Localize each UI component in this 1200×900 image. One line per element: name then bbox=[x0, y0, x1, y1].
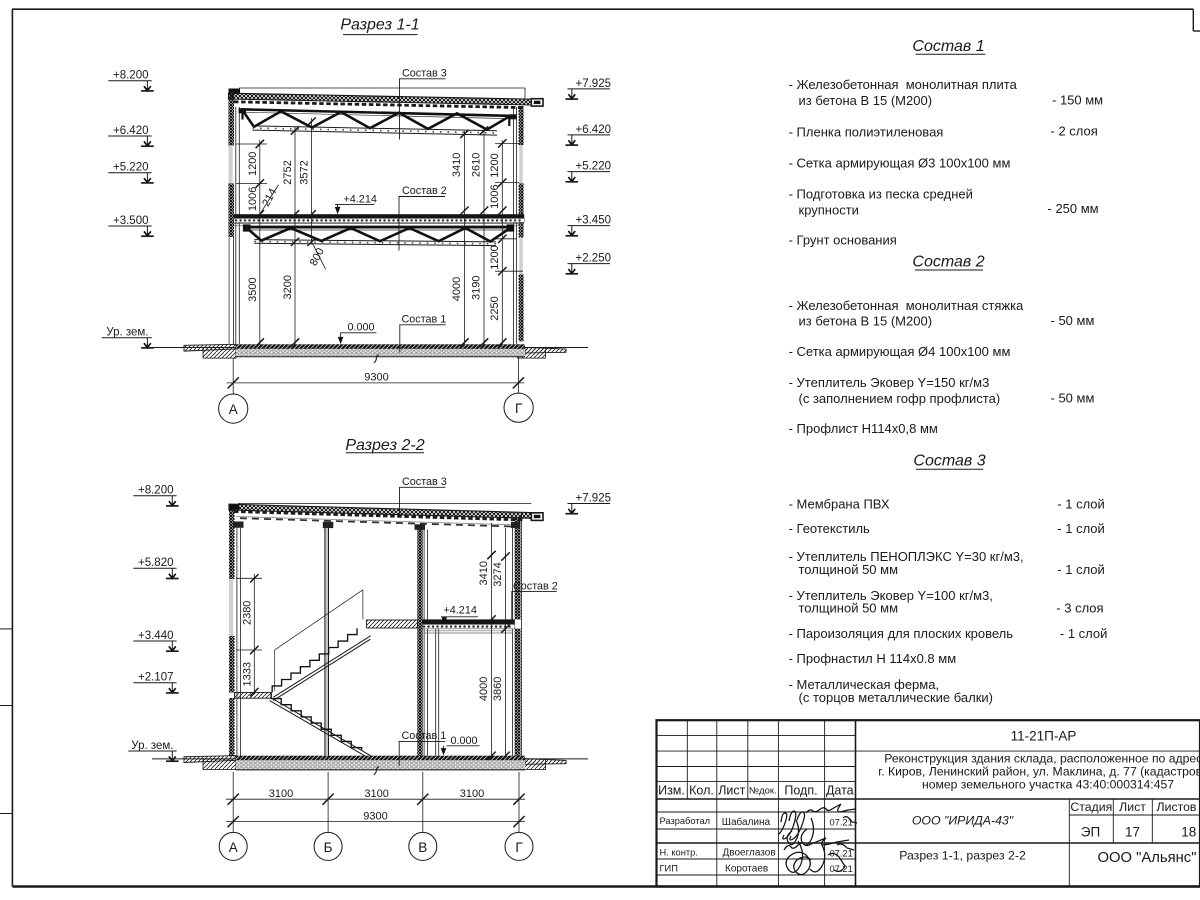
svg-text:17: 17 bbox=[1125, 825, 1140, 840]
svg-text:2250: 2250 bbox=[489, 296, 501, 320]
svg-text:3190: 3190 bbox=[470, 275, 482, 299]
svg-text:Состав 2: Состав 2 bbox=[513, 581, 558, 593]
svg-text:Состав 1: Состав 1 bbox=[402, 730, 447, 742]
svg-text:+8.200: +8.200 bbox=[138, 485, 174, 497]
svg-text:- 50 мм: - 50 мм bbox=[1051, 313, 1095, 328]
svg-text:- Грунт основания: - Грунт основания bbox=[789, 233, 897, 248]
svg-text:А: А bbox=[229, 402, 238, 417]
svg-text:+2.250: +2.250 bbox=[576, 253, 612, 265]
svg-text:Состав 3: Состав 3 bbox=[402, 476, 447, 488]
svg-text:1200: 1200 bbox=[489, 153, 501, 177]
svg-text:18: 18 bbox=[1181, 825, 1196, 840]
svg-text:3100: 3100 bbox=[269, 788, 293, 800]
svg-text:+3.440: +3.440 bbox=[138, 630, 174, 642]
svg-text:- 1 слой: - 1 слой bbox=[1057, 497, 1105, 512]
svg-text:Разрез 1-1, разрез 2-2: Разрез 1-1, разрез 2-2 bbox=[899, 849, 1026, 863]
svg-text:- Пленка полиэтиленовая: - Пленка полиэтиленовая bbox=[789, 125, 944, 140]
svg-text:Состав 3: Состав 3 bbox=[913, 453, 985, 470]
svg-text:3500: 3500 bbox=[247, 277, 259, 301]
svg-text:+8.200: +8.200 bbox=[113, 70, 149, 82]
svg-text:крупности: крупности bbox=[799, 203, 859, 218]
svg-text:Состав 1: Состав 1 bbox=[402, 313, 447, 325]
svg-text:ООО "Альянс": ООО "Альянс" bbox=[1098, 850, 1197, 866]
svg-text:Шабалина: Шабалина bbox=[722, 816, 771, 828]
svg-text:+3.500: +3.500 bbox=[113, 215, 149, 227]
svg-text:- Мембрана ПВХ: - Мембрана ПВХ bbox=[789, 497, 890, 512]
svg-text:+4.214: +4.214 bbox=[344, 193, 377, 205]
svg-text:9300: 9300 bbox=[364, 372, 388, 384]
svg-text:1200: 1200 bbox=[247, 152, 259, 176]
svg-text:Состав 1: Состав 1 bbox=[912, 38, 984, 55]
svg-text:- 1 слой: - 1 слой bbox=[1057, 562, 1105, 577]
svg-text:ООО "ИРИДА-43": ООО "ИРИДА-43" bbox=[912, 813, 1014, 827]
svg-text:Дата: Дата bbox=[826, 784, 854, 798]
svg-text:2610: 2610 bbox=[470, 153, 482, 177]
svg-text:1006: 1006 bbox=[247, 187, 259, 211]
svg-text:- Профлист Н114х0,8 мм: - Профлист Н114х0,8 мм bbox=[789, 421, 938, 436]
svg-text:Разрез 1-1: Разрез 1-1 bbox=[340, 17, 419, 34]
svg-text:Лист: Лист bbox=[1119, 800, 1146, 814]
svg-text:1006: 1006 bbox=[489, 184, 501, 208]
svg-text:+4.214: +4.214 bbox=[444, 604, 477, 616]
svg-text:из бетона В 15 (М200): из бетона В 15 (М200) bbox=[799, 314, 933, 329]
svg-text:- 50 мм: - 50 мм bbox=[1051, 391, 1095, 406]
svg-text:ГИП: ГИП bbox=[660, 864, 678, 874]
svg-text:- Профнастил Н 114х0.8 мм: - Профнастил Н 114х0.8 мм bbox=[789, 651, 957, 666]
svg-text:+7.925: +7.925 bbox=[576, 492, 612, 504]
svg-text:Подп.: Подп. bbox=[784, 784, 817, 798]
svg-text:В: В bbox=[418, 840, 427, 855]
svg-text:Лист: Лист bbox=[718, 784, 745, 798]
svg-text:Стадия: Стадия bbox=[1070, 800, 1112, 814]
svg-text:номер земельного участка 43:40: номер земельного участка 43:40:000314:45… bbox=[922, 777, 1174, 791]
svg-text:Двоеглазов: Двоеглазов bbox=[723, 848, 776, 859]
svg-text:- 1 слой: - 1 слой bbox=[1060, 626, 1108, 641]
svg-text:Ур. зем.: Ур. зем. bbox=[131, 740, 173, 752]
svg-text:- 250 мм: - 250 мм bbox=[1048, 201, 1099, 216]
svg-text:(с заполнением гофр профлиста): (с заполнением гофр профлиста) bbox=[799, 391, 1001, 406]
svg-text:2380: 2380 bbox=[241, 601, 253, 625]
svg-text:Г: Г bbox=[515, 401, 523, 416]
svg-text:+6.420: +6.420 bbox=[576, 124, 612, 136]
svg-text:Н. контр.: Н. контр. bbox=[660, 848, 698, 858]
svg-text:1333: 1333 bbox=[241, 662, 253, 686]
svg-text:0.000: 0.000 bbox=[451, 735, 478, 747]
svg-text:- Железобетонная монолитная с: - Железобетонная монолитная стяжка bbox=[789, 298, 1024, 313]
svg-text:3410: 3410 bbox=[478, 561, 490, 585]
svg-text:+3.450: +3.450 bbox=[576, 215, 612, 227]
svg-text:+5.220: +5.220 bbox=[113, 162, 149, 174]
svg-text:- 2 слоя: - 2 слоя bbox=[1051, 124, 1098, 139]
svg-text:Реконструкция здания склада, р: Реконструкция здания склада, расположенн… bbox=[884, 751, 1200, 765]
svg-text:Ур. зем.: Ур. зем. bbox=[106, 327, 148, 339]
svg-text:- Утеплитель Эковер Y=150 кг/м: - Утеплитель Эковер Y=150 кг/м3 bbox=[789, 375, 990, 390]
svg-text:ЭП: ЭП bbox=[1081, 825, 1100, 840]
svg-text:3274: 3274 bbox=[492, 562, 504, 586]
svg-text:Листов: Листов bbox=[1157, 800, 1197, 814]
svg-text:11-21П-АР: 11-21П-АР bbox=[1011, 728, 1077, 743]
svg-text:Кол.: Кол. bbox=[689, 784, 714, 798]
svg-text:толщиной 50 мм: толщиной 50 мм bbox=[799, 601, 899, 616]
svg-text:- Пароизоляция для плоских кро: - Пароизоляция для плоских кровель bbox=[789, 626, 1014, 641]
svg-text:№док.: №док. bbox=[749, 786, 777, 797]
svg-text:из бетона В 15 (М200): из бетона В 15 (М200) bbox=[799, 93, 933, 108]
svg-text:1200: 1200 bbox=[489, 245, 501, 269]
svg-text:3200: 3200 bbox=[282, 275, 294, 299]
svg-text:Б: Б bbox=[324, 840, 333, 855]
svg-text:- Железобетонная монолитная п: - Железобетонная монолитная плита bbox=[789, 77, 1018, 92]
svg-text:А: А bbox=[229, 840, 238, 855]
svg-text:9300: 9300 bbox=[363, 810, 387, 822]
svg-text:толщиной 50 мм: толщиной 50 мм bbox=[799, 562, 899, 577]
svg-text:2752: 2752 bbox=[282, 160, 294, 184]
svg-text:- 150 мм: - 150 мм bbox=[1052, 93, 1103, 108]
svg-text:3100: 3100 bbox=[460, 788, 484, 800]
svg-text:3410: 3410 bbox=[451, 153, 463, 177]
svg-text:- Подготовка из песка средней: - Подготовка из песка средней bbox=[789, 187, 973, 202]
svg-text:+5.220: +5.220 bbox=[576, 161, 612, 173]
svg-text:г. Киров, Ленинский район, ул.: г. Киров, Ленинский район, ул. Маклина, … bbox=[878, 764, 1200, 778]
svg-text:- Геотекстиль: - Геотекстиль bbox=[789, 521, 870, 536]
svg-text:Состав 3: Состав 3 bbox=[402, 68, 447, 80]
svg-text:- Сетка армирующая Ø4 100х100: - Сетка армирующая Ø4 100х100 мм bbox=[789, 344, 1011, 359]
svg-text:07.21: 07.21 bbox=[830, 864, 853, 874]
svg-text:3100: 3100 bbox=[364, 788, 388, 800]
svg-text:Разработал: Разработал bbox=[660, 816, 711, 826]
svg-text:- Сетка армирующая Ø3 100х100: - Сетка армирующая Ø3 100х100 мм bbox=[789, 156, 1011, 171]
svg-text:+6.420: +6.420 bbox=[113, 125, 149, 137]
svg-text:(с торцов металлические балки): (с торцов металлические балки) bbox=[799, 690, 994, 705]
svg-text:+5.820: +5.820 bbox=[138, 557, 174, 569]
svg-text:Изм.: Изм. bbox=[658, 784, 685, 798]
svg-text:- 3 слоя: - 3 слоя bbox=[1056, 601, 1103, 616]
svg-text:+7.925: +7.925 bbox=[576, 78, 612, 90]
svg-text:+2.107: +2.107 bbox=[138, 672, 174, 684]
svg-text:Коротаев: Коротаев bbox=[725, 863, 768, 874]
svg-text:4000: 4000 bbox=[478, 677, 490, 701]
svg-text:Состав 2: Состав 2 bbox=[402, 185, 447, 197]
svg-text:3860: 3860 bbox=[492, 677, 504, 701]
svg-text:3572: 3572 bbox=[299, 160, 311, 184]
svg-text:Состав 2: Состав 2 bbox=[912, 254, 984, 271]
svg-text:- 1 слой: - 1 слой bbox=[1057, 521, 1105, 536]
svg-text:4000: 4000 bbox=[451, 277, 463, 301]
svg-text:0.000: 0.000 bbox=[348, 321, 375, 333]
svg-text:Г: Г bbox=[515, 840, 523, 855]
svg-text:Разрез 2-2: Разрез 2-2 bbox=[345, 437, 424, 454]
